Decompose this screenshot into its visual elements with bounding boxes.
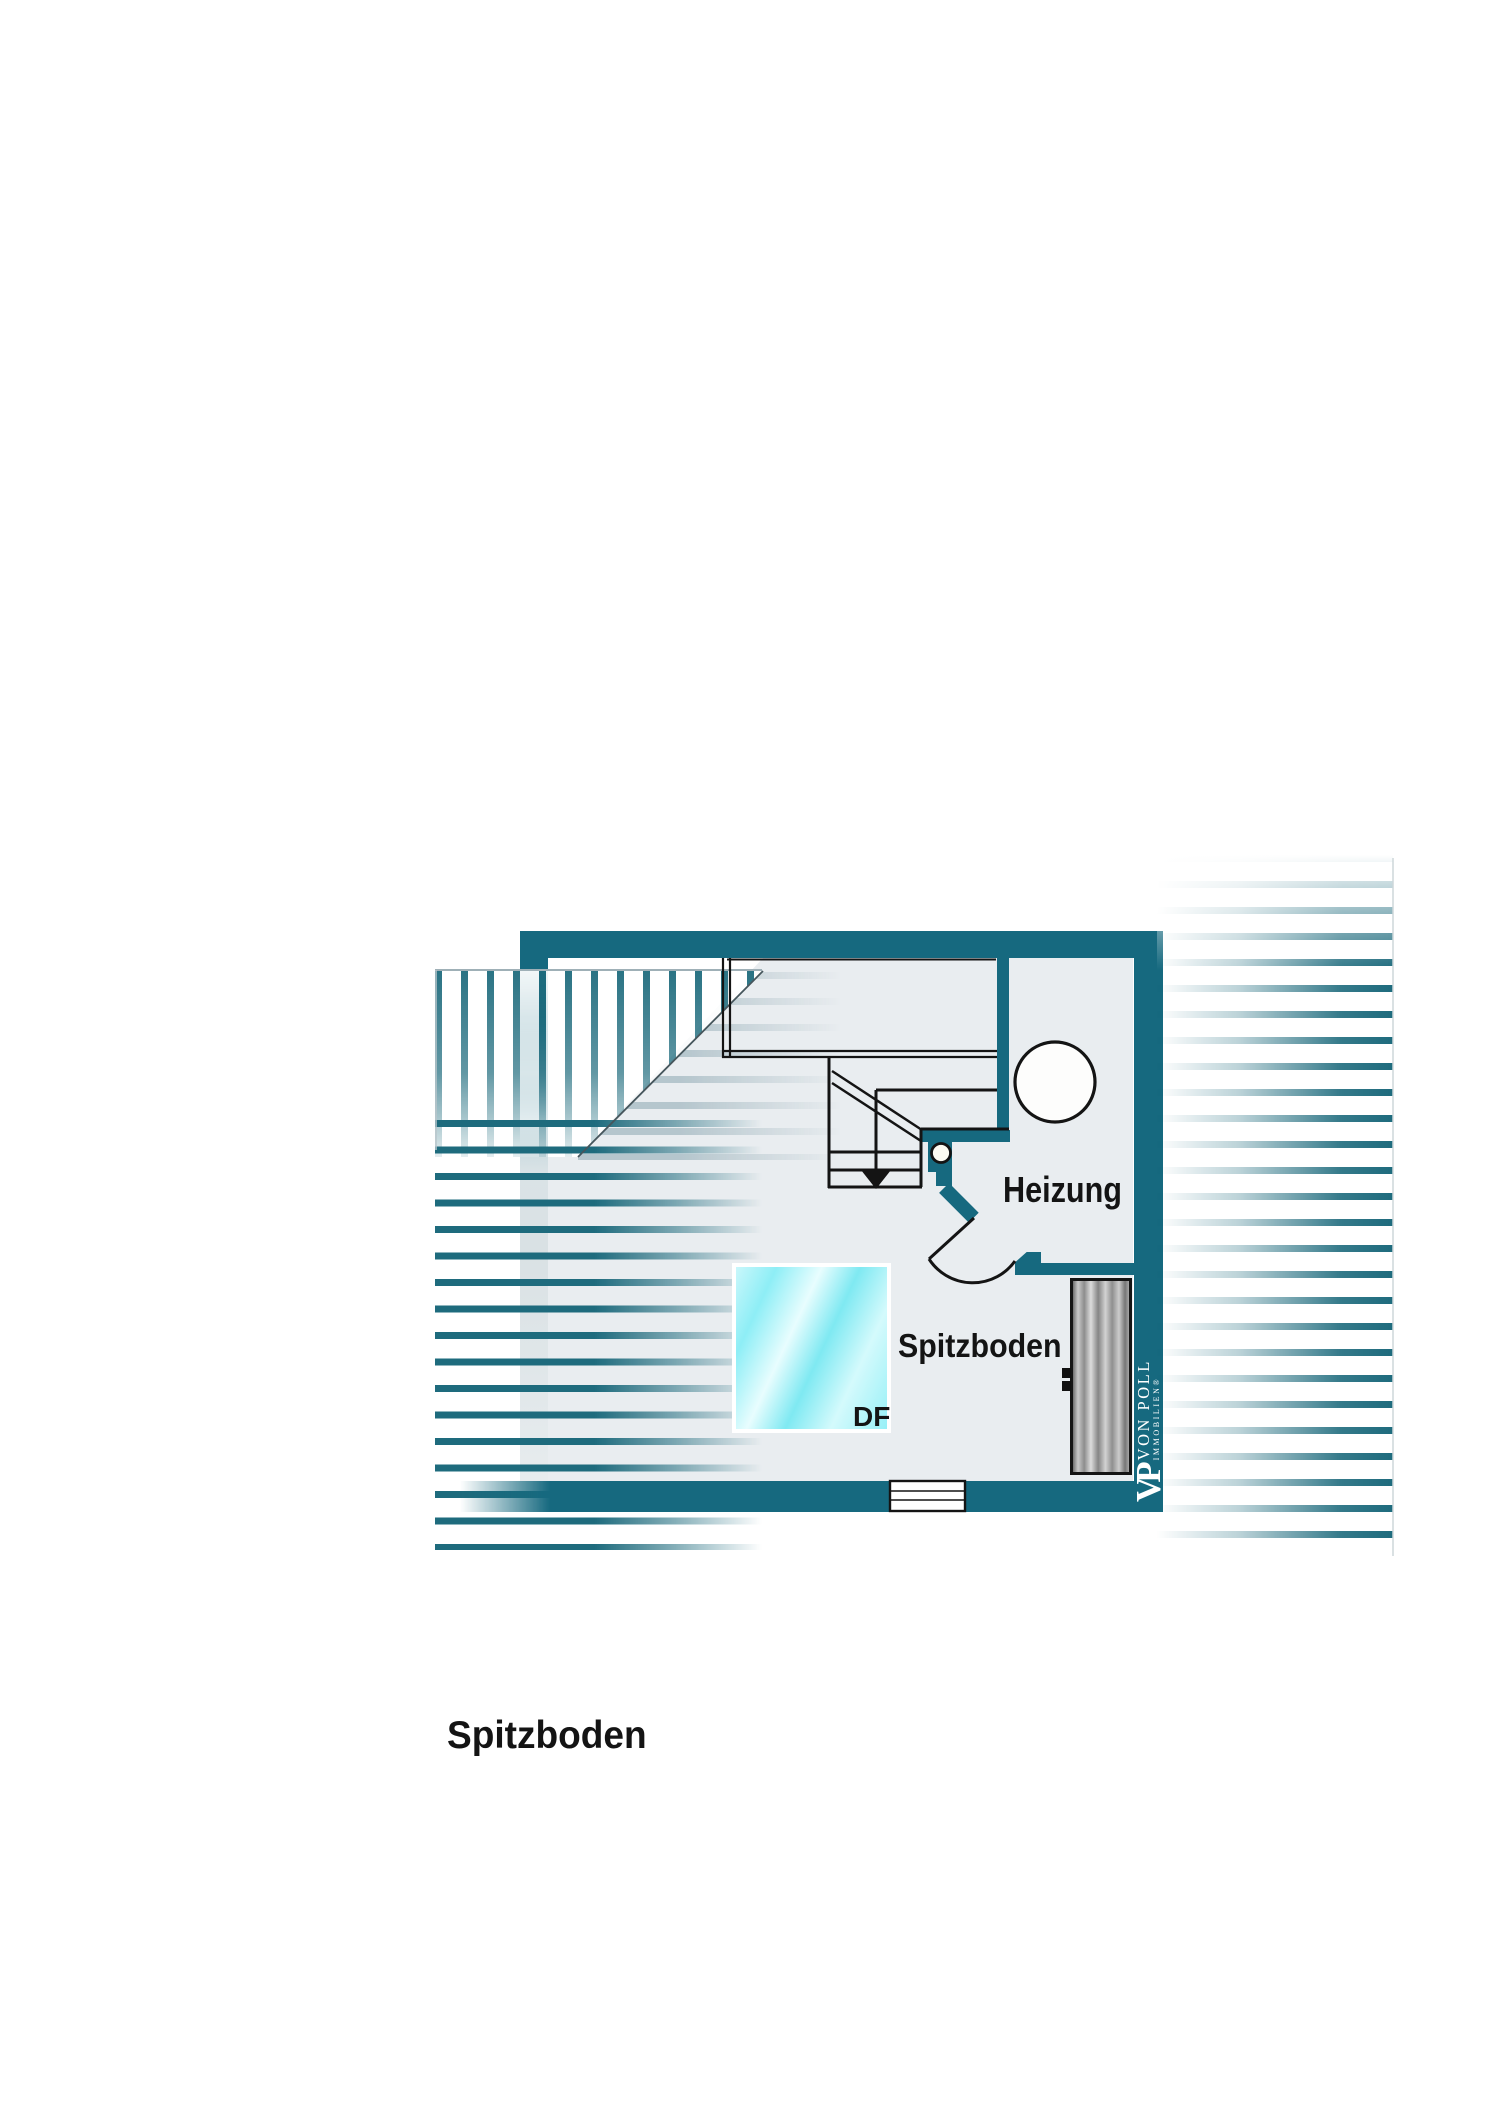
floorplan-page: Heizung Spitzboden DF Spitzboden VP VON … — [0, 0, 1500, 2122]
page-title: Spitzboden — [447, 1716, 647, 1755]
wardrobe-cabinet — [1070, 1278, 1132, 1475]
logo-name: VON POLL — [1135, 1359, 1152, 1460]
wardrobe-handle — [1062, 1381, 1071, 1391]
heizung-partition-wall — [997, 958, 1009, 1137]
logo-monogram: VP — [1131, 1467, 1166, 1504]
spitzboden-room-label: Spitzboden — [898, 1329, 1062, 1362]
bottom-wall — [460, 1481, 1163, 1512]
top-wall — [520, 931, 1163, 958]
roof-window-label: DF — [853, 1403, 890, 1431]
von-poll-logo: VP VON POLL IMMOBILIEN® — [1134, 1338, 1163, 1504]
newel-post — [928, 1137, 952, 1172]
heizung-bottom-wall — [1027, 1263, 1134, 1275]
logo-subtitle: IMMOBILIEN® — [1153, 1359, 1162, 1460]
heizung-room-label: Heizung — [1003, 1172, 1122, 1208]
logo-wordmark: VON POLL IMMOBILIEN® — [1135, 1359, 1161, 1460]
wardrobe-handle — [1062, 1368, 1071, 1378]
roof-hatch-right-fade — [1157, 855, 1393, 970]
